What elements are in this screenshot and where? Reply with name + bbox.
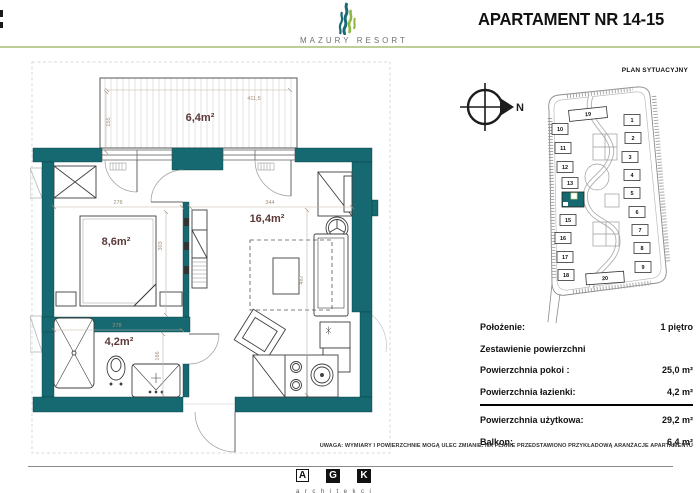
dimension-label: 155 — [106, 117, 112, 126]
bed — [80, 216, 156, 306]
wardrobe — [54, 166, 96, 198]
brand-name: MAZURY RESORT — [300, 36, 392, 45]
svg-text:8: 8 — [640, 246, 643, 252]
radiator — [192, 258, 207, 288]
architect-logo-letter: G — [326, 469, 340, 483]
dimension-label: 166 — [155, 351, 161, 360]
nightstand — [56, 292, 76, 306]
building-5: 5 — [624, 188, 640, 199]
architect-logo-letter: K — [357, 469, 371, 483]
vanity-sink — [132, 364, 180, 397]
building-13: 13 — [562, 178, 578, 189]
building-19: 19 — [569, 107, 608, 122]
svg-text:16: 16 — [560, 236, 566, 242]
svg-text:9: 9 — [641, 265, 644, 271]
print-mark — [0, 10, 3, 17]
building-2: 2 — [625, 133, 641, 144]
architect-logo-letter: A — [296, 469, 309, 482]
room-area-label-bedroom: 8,6m² — [102, 236, 131, 248]
cabinet — [192, 230, 207, 258]
building-7: 7 — [632, 225, 648, 236]
compass-icon: N — [458, 80, 530, 138]
architect-logo: AGK architekci — [296, 469, 406, 493]
table-row: Powierzchnia pokoi :25,0 m² — [480, 365, 693, 375]
shower — [54, 318, 94, 388]
cabinet — [192, 210, 207, 230]
building-17: 17 — [557, 252, 573, 263]
dimension-label: 487 — [299, 275, 305, 284]
sofa — [314, 234, 348, 316]
building-9: 9 — [635, 262, 651, 273]
print-mark — [0, 22, 3, 28]
row-label: Powierzchnia pokoi : — [480, 365, 570, 375]
nightstand — [160, 292, 182, 306]
building-16: 16 — [555, 233, 571, 244]
room-area-label-living-room: 16,4m² — [250, 213, 285, 225]
closet — [318, 172, 352, 216]
area-details-table: Położenie:1 piętro Zestawienie powierzch… — [480, 322, 693, 458]
architect-logo-caption: architekci — [296, 489, 406, 493]
building-8: 8 — [634, 243, 650, 254]
svg-text:15: 15 — [565, 218, 571, 224]
svg-text:2: 2 — [631, 136, 634, 142]
apartment-sheet: MAZURY RESORT APARTAMENT NR 14-15 — [0, 0, 700, 493]
row-label: Zestawienie powierzchni — [480, 344, 586, 354]
building-10: 10 — [552, 124, 568, 135]
building-18: 18 — [558, 270, 574, 281]
svg-text:18: 18 — [563, 273, 569, 279]
armchair — [234, 309, 285, 360]
room-area-label-bathroom: 4,2m² — [105, 336, 134, 348]
footer-rule — [28, 466, 673, 467]
svg-text:10: 10 — [557, 127, 563, 133]
dimension-label: 411,5 — [247, 96, 260, 102]
floor-plan: 411,5155278344303487278166 6,4m²8,6m²16,… — [30, 60, 395, 458]
building-6: 6 — [629, 207, 645, 218]
building-20: 20 — [586, 271, 625, 285]
row-value: 1 piętro — [660, 322, 693, 332]
room-area-label-balcony: 6,4m² — [186, 112, 215, 124]
dimension-label: 344 — [265, 200, 274, 206]
dimension-label: 278 — [113, 200, 122, 206]
svg-text:7: 7 — [638, 228, 641, 234]
brand-logo: MAZURY RESORT — [300, 2, 392, 45]
table-row: Powierzchnia łazienki:4,2 m² — [480, 387, 693, 397]
mazury-resort-tree-icon — [331, 2, 361, 35]
row-label: Powierzchnia łazienki: — [480, 387, 576, 397]
table-separator — [480, 404, 693, 406]
compass-north-label: N — [516, 102, 524, 114]
svg-text:20: 20 — [602, 276, 609, 282]
svg-text:11: 11 — [560, 146, 566, 152]
toilet — [107, 356, 125, 385]
table-row: Zestawienie powierzchni — [480, 344, 693, 354]
svg-text:1: 1 — [630, 118, 633, 124]
table-row: Powierzchnia użytkowa:29,2 m² — [480, 415, 693, 425]
svg-text:17: 17 — [562, 255, 568, 261]
coffee-table — [273, 258, 299, 294]
dimension-label: 303 — [158, 241, 164, 250]
svg-text:5: 5 — [630, 191, 633, 197]
svg-text:6: 6 — [635, 210, 638, 216]
svg-text:13: 13 — [567, 181, 573, 187]
site-plan: 19101112131516171820123456789 — [533, 82, 698, 327]
siteplan-title: PLAN SYTUACYJNY — [528, 67, 688, 74]
cabinet — [320, 322, 350, 348]
building-3: 3 — [622, 152, 638, 163]
header-rule — [0, 46, 700, 48]
building-4: 4 — [624, 170, 640, 181]
building-12: 12 — [557, 162, 573, 173]
row-label: Położenie: — [480, 322, 525, 332]
row-value: 29,2 m² — [662, 415, 693, 425]
dimension-label: 278 — [112, 323, 121, 329]
row-value: 4,2 m² — [667, 387, 693, 397]
page-title: APARTAMENT NR 14-15 — [478, 9, 664, 30]
svg-text:19: 19 — [585, 112, 592, 119]
building-highlighted — [562, 192, 584, 207]
table-row: Położenie:1 piętro — [480, 322, 693, 332]
svg-text:3: 3 — [628, 155, 631, 161]
building-15: 15 — [560, 215, 576, 226]
row-value: 25,0 m² — [662, 365, 693, 375]
svg-text:12: 12 — [562, 165, 568, 171]
disclaimer-note: UWAGA: WYMIARY I POWIERZCHNIE MOGĄ ULEC … — [240, 443, 693, 449]
kitchen-counter — [253, 355, 338, 397]
building-1: 1 — [624, 115, 640, 126]
building-11: 11 — [555, 143, 571, 154]
row-label: Powierzchnia użytkowa: — [480, 415, 584, 425]
